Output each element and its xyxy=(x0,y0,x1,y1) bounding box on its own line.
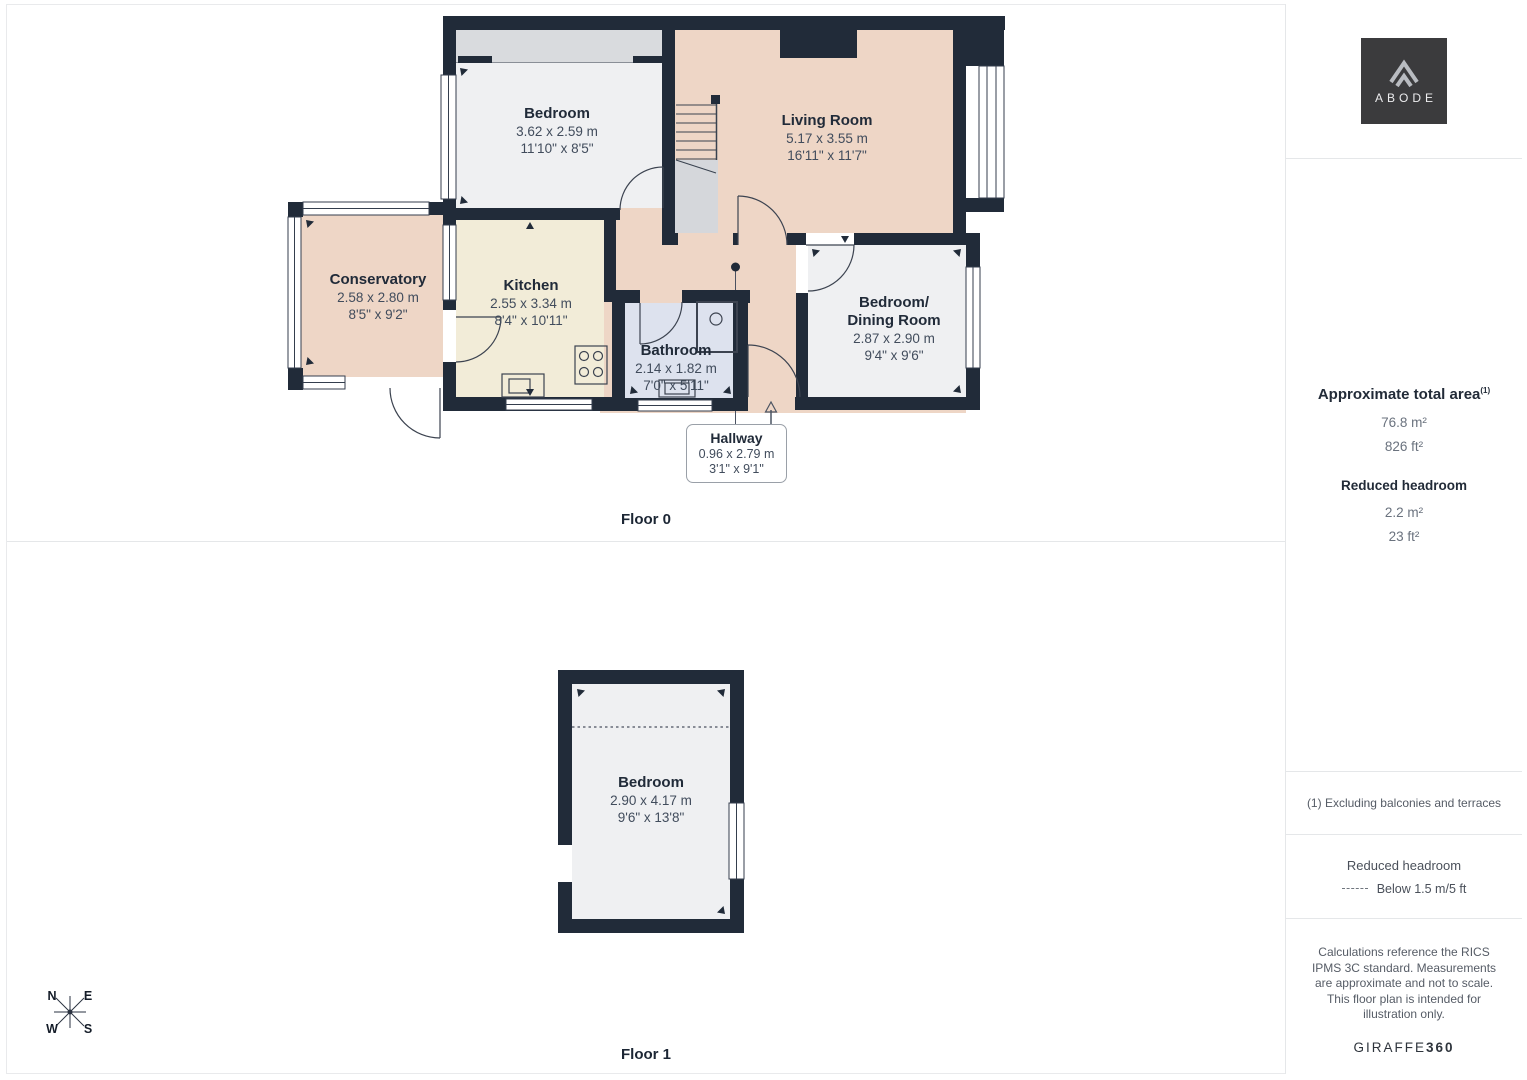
room-size-imperial: 8'4" x 10'11" xyxy=(431,312,631,329)
room-name: Bedroom xyxy=(457,105,657,123)
disclaimer-text: Calculations reference the RICS IPMS 3C … xyxy=(1306,945,1502,1023)
compass-north-label: N xyxy=(44,989,60,1003)
floor1-label: Floor 1 xyxy=(566,1046,726,1063)
room-size-metric: 3.62 x 2.59 m xyxy=(457,123,657,140)
room-size-metric: 2.87 x 2.90 m xyxy=(794,330,994,347)
reduced-headroom-m2: 2.2 m² xyxy=(1385,505,1423,520)
giraffe-360-text: 360 xyxy=(1426,1040,1455,1055)
room-name: Hallway xyxy=(687,430,786,447)
legend-row: Below 1.5 m/5 ft xyxy=(1342,882,1467,896)
reduced-headroom-ft2: 23 ft² xyxy=(1389,529,1420,544)
room-size-imperial: 3'1" x 9'1" xyxy=(687,462,786,477)
reduced-headroom-title: Reduced headroom xyxy=(1341,478,1467,493)
room-name-line2: Dining Room xyxy=(794,312,994,330)
room-size-metric: 2.90 x 4.17 m xyxy=(551,792,751,809)
floor0-label: Floor 0 xyxy=(566,511,726,528)
total-area-title-text: Approximate total area xyxy=(1318,386,1481,403)
room-label-kitchen: Kitchen 2.55 x 3.34 m 8'4" x 10'11" xyxy=(431,277,631,329)
giraffe-text: GIRAFFE xyxy=(1353,1040,1426,1055)
legend-title: Reduced headroom xyxy=(1347,858,1461,873)
room-name: Bedroom/ xyxy=(794,294,994,312)
total-area-m2: 76.8 m² xyxy=(1381,415,1427,430)
info-sidebar: ABODE Approximate total area(1) 76.8 m² … xyxy=(1285,4,1522,1074)
footnote-text: (1) Excluding balconies and terraces xyxy=(1307,796,1501,810)
room-label-bathroom: Bathroom 2.14 x 1.82 m 7'0" x 5'11" xyxy=(576,342,776,394)
room-size-imperial: 9'4" x 9'6" xyxy=(794,347,994,364)
logo-wordmark: ABODE xyxy=(1371,91,1437,105)
room-name: Bathroom xyxy=(576,342,776,360)
giraffe360-wordmark: GIRAFFE360 xyxy=(1353,1040,1454,1055)
legend-section: Reduced headroom Below 1.5 m/5 ft xyxy=(1286,835,1522,919)
room-label-bedroom0: Bedroom 3.62 x 2.59 m 11'10" x 8'5" xyxy=(457,105,657,157)
room-size-imperial: 11'10" x 8'5" xyxy=(457,140,657,157)
room-name: Bedroom xyxy=(551,774,751,792)
dashed-line-swatch xyxy=(1342,888,1368,889)
hallway-point xyxy=(731,263,740,272)
compass-east-label: E xyxy=(80,989,96,1003)
abode-logo: ABODE xyxy=(1361,38,1447,124)
floorplan-page: Bedroom 3.62 x 2.59 m 11'10" x 8'5" Livi… xyxy=(0,0,1527,1080)
abode-chevron-icon xyxy=(1383,58,1425,88)
room-size-imperial: 9'6" x 13'8" xyxy=(551,809,751,826)
legend-item-text: Below 1.5 m/5 ft xyxy=(1377,882,1467,896)
room-size-imperial: 7'0" x 5'11" xyxy=(576,377,776,394)
room-size-metric: 5.17 x 3.55 m xyxy=(727,130,927,147)
room-size-metric: 2.14 x 1.82 m xyxy=(576,360,776,377)
compass-south-label: S xyxy=(80,1022,96,1036)
hallway-label-box: Hallway 0.96 x 2.79 m 3'1" x 9'1" xyxy=(686,424,787,483)
room-label-bedroom1: Bedroom 2.90 x 4.17 m 9'6" x 13'8" xyxy=(551,774,751,826)
room-name: Kitchen xyxy=(431,277,631,295)
room-size-metric: 0.96 x 2.79 m xyxy=(687,447,786,462)
compass-west-label: W xyxy=(44,1022,60,1036)
disclaimer-section: Calculations reference the RICS IPMS 3C … xyxy=(1286,919,1522,1074)
total-area-ft2: 826 ft² xyxy=(1385,439,1423,454)
footnote-marker: (1) xyxy=(1480,386,1490,395)
room-label-bedroom-dining: Bedroom/ Dining Room 2.87 x 2.90 m 9'4" … xyxy=(794,294,994,364)
logo-section: ABODE xyxy=(1286,4,1522,159)
area-summary-section: Approximate total area(1) 76.8 m² 826 ft… xyxy=(1286,159,1522,772)
total-area-title: Approximate total area(1) xyxy=(1318,386,1490,403)
room-size-metric: 2.55 x 3.34 m xyxy=(431,295,631,312)
footnote-section: (1) Excluding balconies and terraces xyxy=(1286,772,1522,835)
room-name: Living Room xyxy=(727,112,927,130)
room-size-imperial: 16'11" x 11'7" xyxy=(727,147,927,164)
room-label-living: Living Room 5.17 x 3.55 m 16'11" x 11'7" xyxy=(727,112,927,164)
